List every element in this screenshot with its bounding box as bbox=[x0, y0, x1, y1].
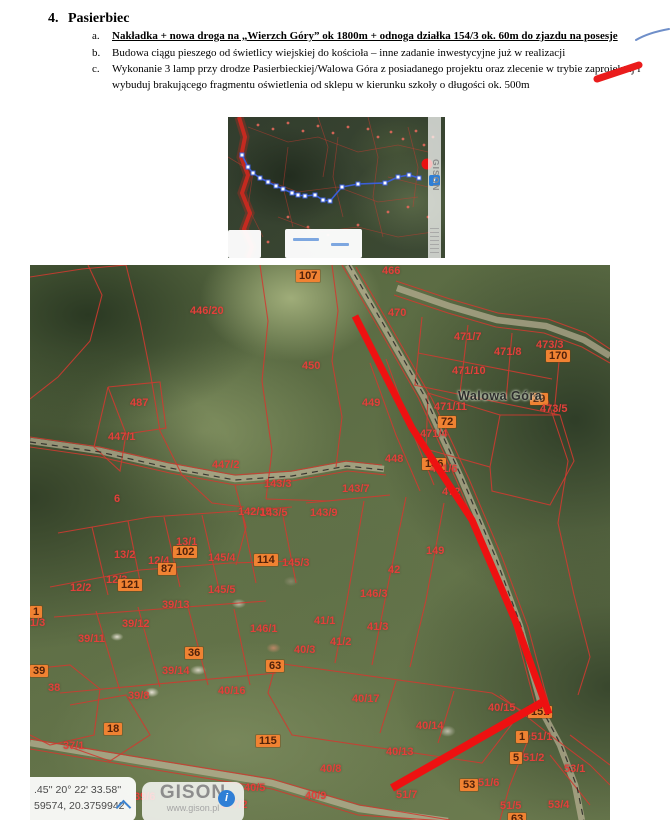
popup-text-fragment bbox=[293, 238, 319, 241]
action-items-list: a.Nakładka + nowa droga na „Wierzch Góry… bbox=[92, 29, 644, 94]
measurement-vertex-marker bbox=[328, 199, 332, 203]
building-dot bbox=[287, 122, 290, 125]
strip-fine-print bbox=[430, 228, 439, 254]
measurement-vertex-marker bbox=[417, 176, 421, 180]
cadastral-map-image: .45'' 20° 22' 33.58'' 59574, 20.3759942 … bbox=[30, 265, 610, 820]
section-number: 4. bbox=[48, 11, 68, 27]
measurement-vertex-marker bbox=[383, 181, 387, 185]
item-marker: c. bbox=[92, 62, 112, 93]
building-dot bbox=[302, 130, 305, 133]
building-dot bbox=[267, 241, 270, 244]
measurement-vertex-marker bbox=[251, 171, 255, 175]
building-dot bbox=[390, 131, 393, 134]
measurement-vertex-marker bbox=[356, 182, 360, 186]
building-dot bbox=[402, 138, 405, 141]
section-title: Pasierbiec bbox=[68, 11, 129, 26]
measurement-vertex-marker bbox=[313, 193, 317, 197]
building-dot bbox=[307, 226, 310, 229]
measurement-vertex-marker bbox=[240, 153, 244, 157]
map-side-strip: i GISON bbox=[428, 117, 441, 258]
building-dot bbox=[377, 136, 380, 139]
building-dot bbox=[317, 125, 320, 128]
measurement-vertex-marker bbox=[303, 194, 307, 198]
building-dot bbox=[287, 216, 290, 219]
building-dot bbox=[332, 132, 335, 135]
building-dot bbox=[347, 126, 350, 129]
building-dot bbox=[367, 128, 370, 131]
popup-text-fragment bbox=[331, 243, 349, 246]
measurement-vertex-marker bbox=[340, 185, 344, 189]
cadastral-line bbox=[408, 127, 418, 207]
building-dot bbox=[415, 130, 418, 133]
action-item: c.Wykonanie 3 lamp przy drodze Pasierbie… bbox=[92, 62, 644, 93]
cadastral-line bbox=[333, 137, 343, 217]
building-dot bbox=[272, 128, 275, 131]
measurement-vertex-marker bbox=[246, 165, 250, 169]
measurement-vertex-marker bbox=[258, 176, 262, 180]
measurement-vertex-marker bbox=[407, 173, 411, 177]
red-annotation-layer bbox=[30, 265, 610, 820]
action-item: a.Nakładka + nowa droga na „Wierzch Góry… bbox=[92, 29, 644, 45]
cadastral-line bbox=[368, 117, 383, 237]
measurement-vertex-marker bbox=[396, 175, 400, 179]
item-text: Budowa ciągu pieszego od świetlicy wiejs… bbox=[112, 46, 644, 62]
cadastral-line bbox=[318, 117, 328, 177]
map-popup-center bbox=[285, 229, 362, 258]
measurement-vertex-marker bbox=[321, 198, 325, 202]
building-dot bbox=[357, 224, 360, 227]
building-dot bbox=[407, 206, 410, 209]
measurement-vertex-marker bbox=[266, 180, 270, 184]
red-highlight-annotation bbox=[392, 702, 543, 788]
building-dot bbox=[387, 211, 390, 214]
item-text: Nakładka + nowa droga na „Wierzch Góry” … bbox=[112, 29, 644, 45]
item-text: Wykonanie 3 lamp przy drodze Pasierbieck… bbox=[112, 62, 644, 93]
building-dot bbox=[257, 124, 260, 127]
measurement-vertex-marker bbox=[296, 193, 300, 197]
map-popup-left bbox=[228, 230, 261, 258]
section-heading: 4.Pasierbiec bbox=[48, 11, 129, 27]
measurement-vertex-marker bbox=[274, 184, 278, 188]
action-item: b.Budowa ciągu pieszego od świetlicy wie… bbox=[92, 46, 644, 62]
red-highlight-annotation bbox=[355, 316, 549, 714]
item-marker: b. bbox=[92, 46, 112, 62]
measurement-vertex-marker bbox=[290, 191, 294, 195]
measurement-vertex-marker bbox=[281, 187, 285, 191]
document-page: 4.Pasierbiec a.Nakładka + nowa droga na … bbox=[0, 0, 672, 834]
item-marker: a. bbox=[92, 29, 112, 45]
overview-map-image: i GISON bbox=[228, 117, 445, 258]
building-dot bbox=[423, 144, 426, 147]
gison-vertical-watermark: GISON bbox=[428, 159, 441, 191]
